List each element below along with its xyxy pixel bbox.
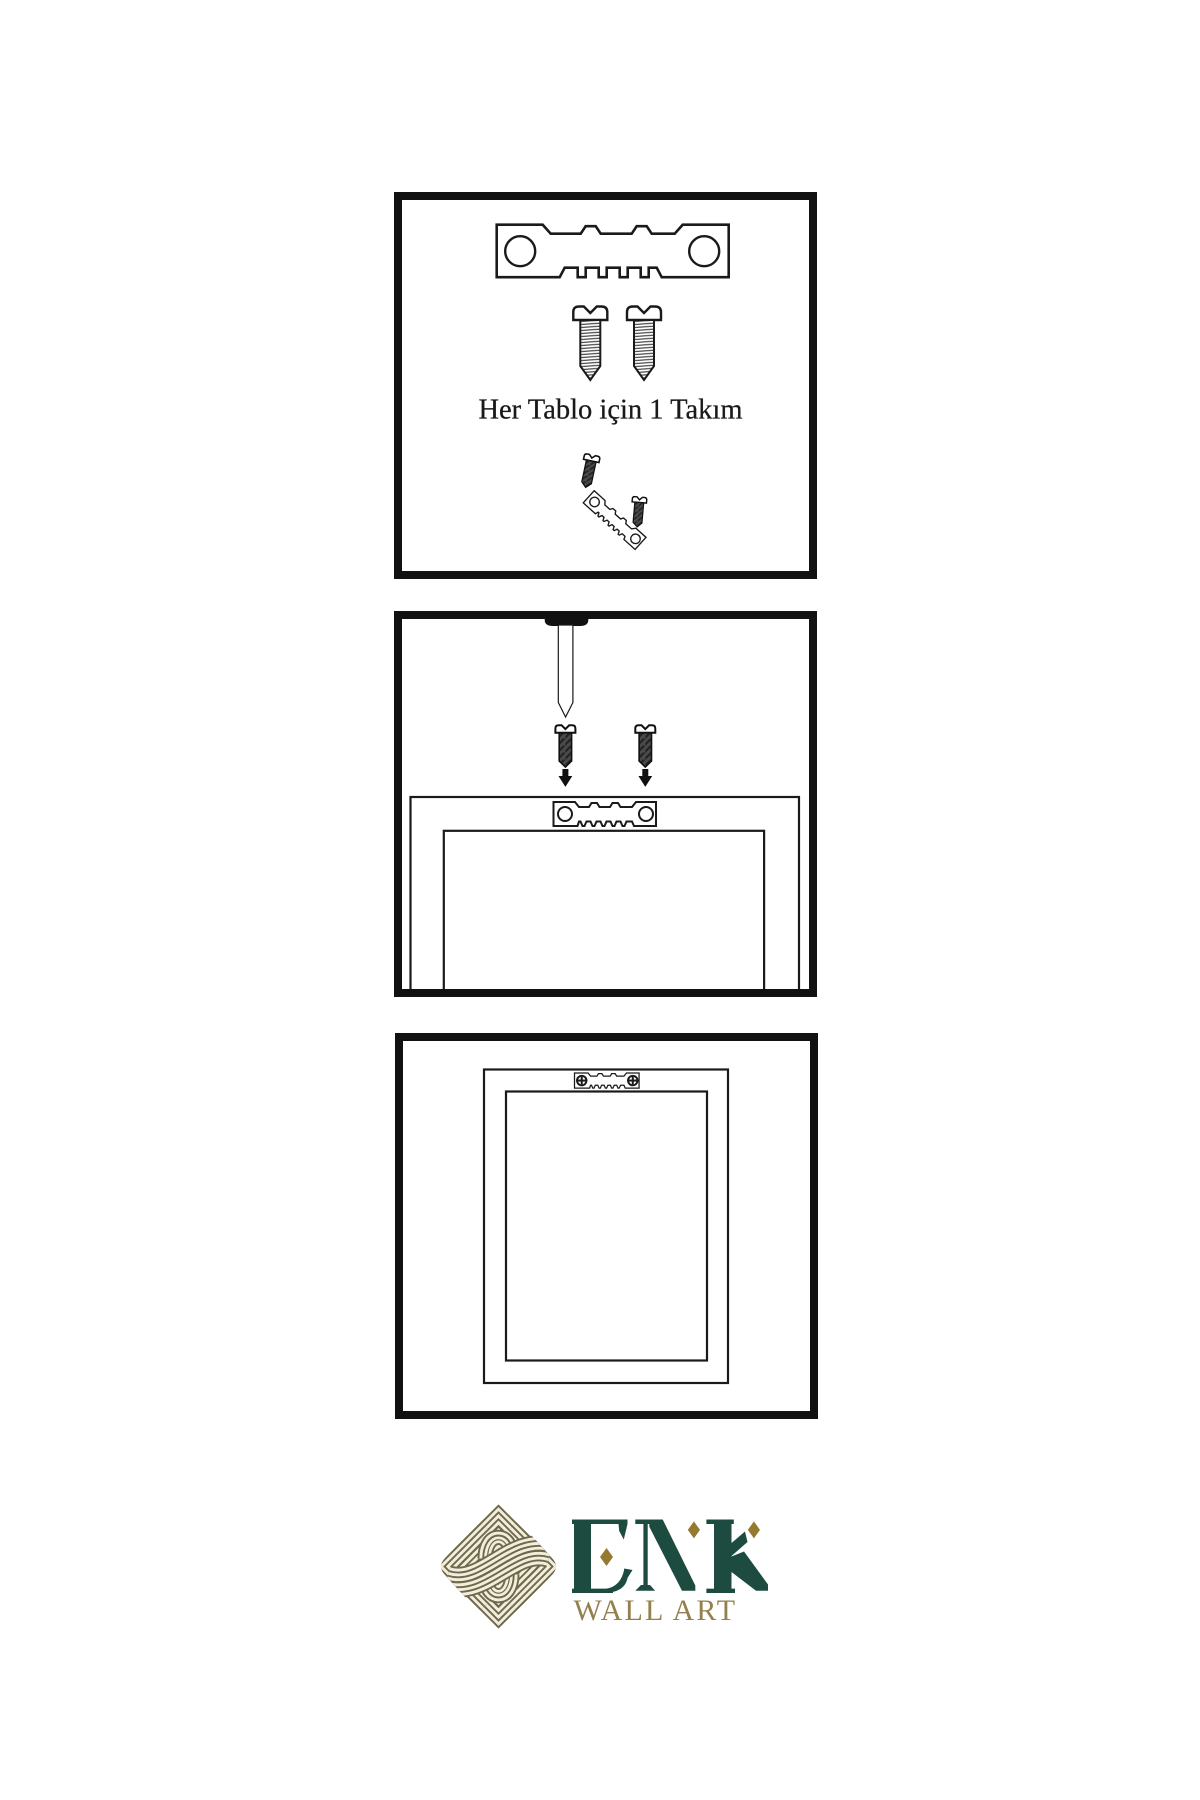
svg-text:WALL ART: WALL ART — [573, 1594, 737, 1627]
svg-text:Her Tablo için 1 Takım: Her Tablo için 1 Takım — [478, 395, 742, 426]
